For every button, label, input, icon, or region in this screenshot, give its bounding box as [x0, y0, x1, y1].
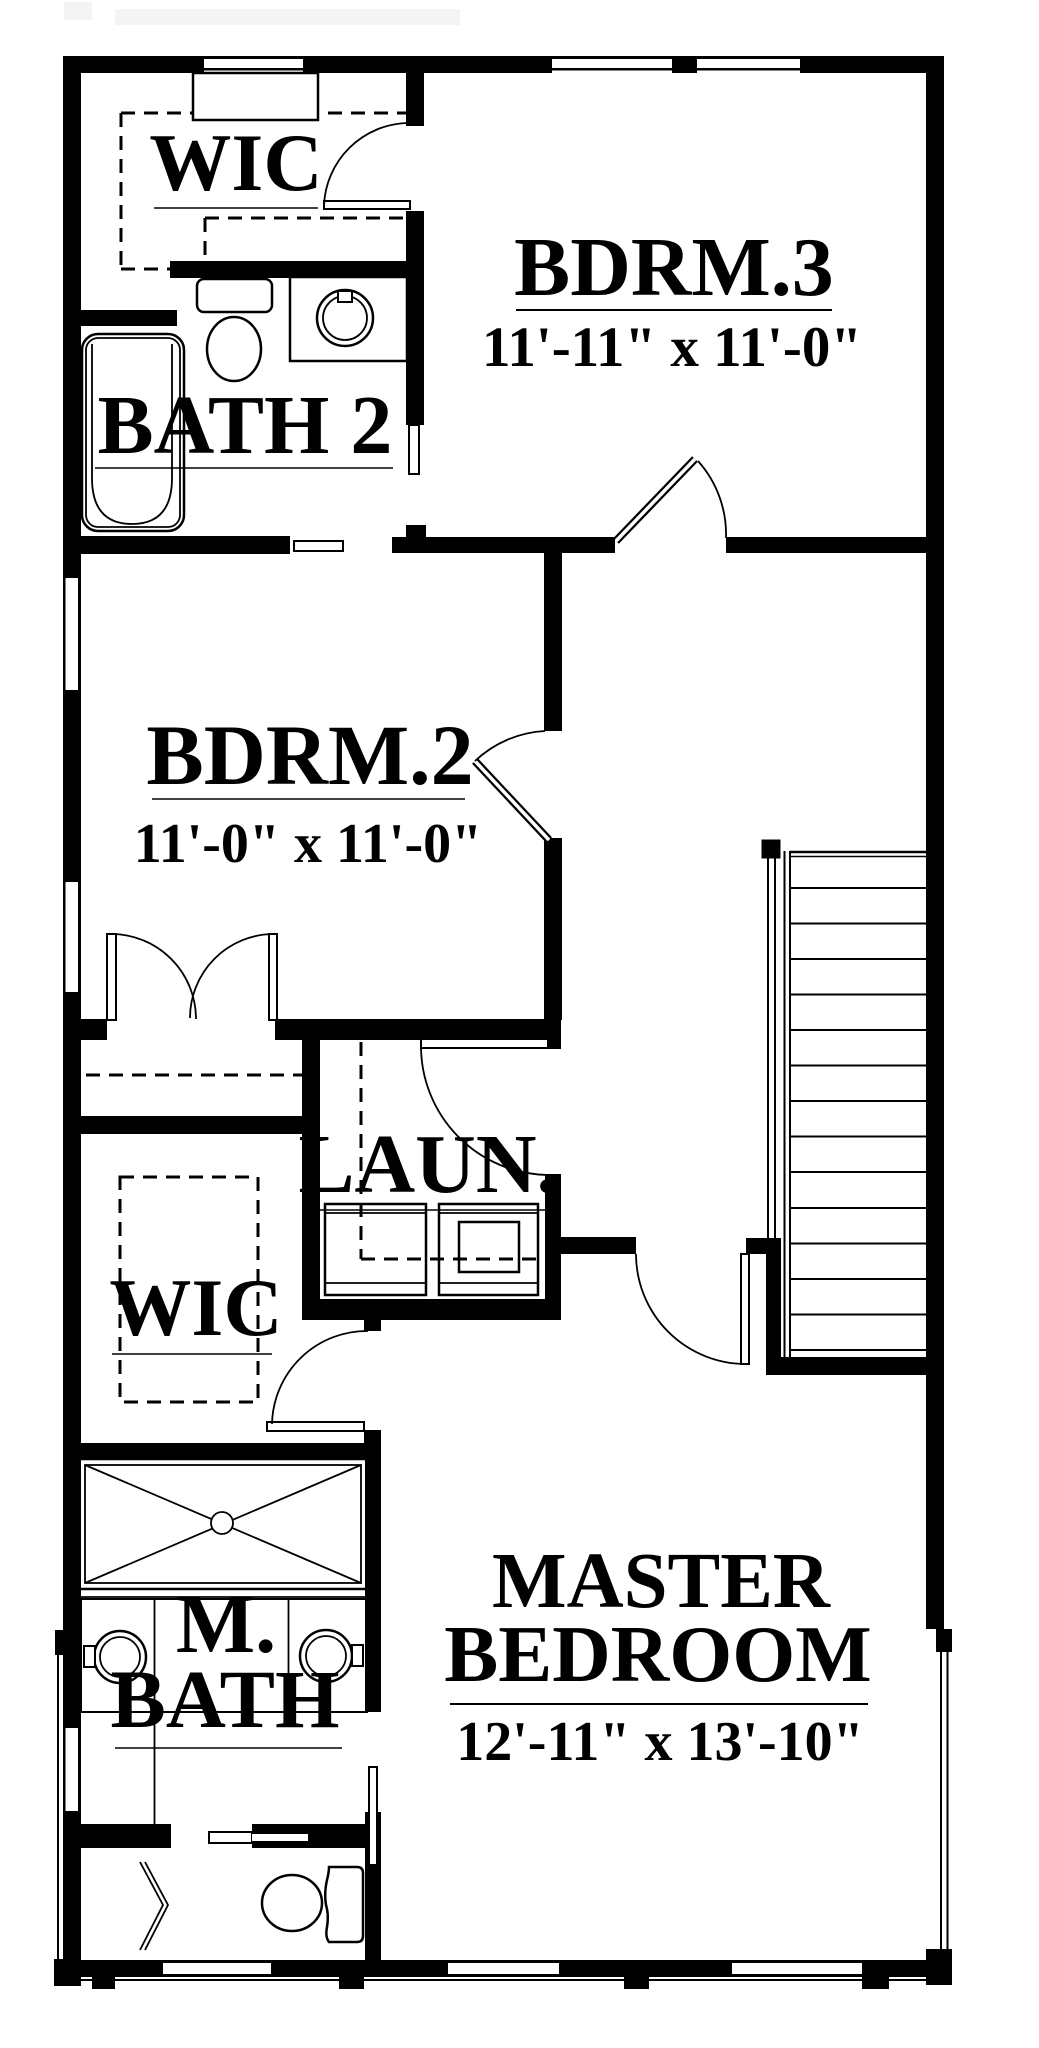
- svg-text:12'-11" x 13'-10": 12'-11" x 13'-10": [456, 1711, 864, 1773]
- svg-text:BEDROOM: BEDROOM: [444, 1609, 872, 1699]
- svg-text:WIC: WIC: [109, 1262, 282, 1353]
- svg-text:BATH 2: BATH 2: [98, 379, 393, 472]
- svg-text:11'-0" x 11'-0": 11'-0" x 11'-0": [134, 813, 482, 875]
- svg-text:BATH: BATH: [110, 1653, 339, 1745]
- svg-text:LAUN.: LAUN.: [298, 1118, 557, 1211]
- svg-text:BDRM.2: BDRM.2: [146, 707, 473, 803]
- svg-text:11'-11" x 11'-0": 11'-11" x 11'-0": [482, 316, 862, 379]
- svg-text:BDRM.3: BDRM.3: [514, 221, 834, 314]
- svg-text:WIC: WIC: [149, 117, 322, 208]
